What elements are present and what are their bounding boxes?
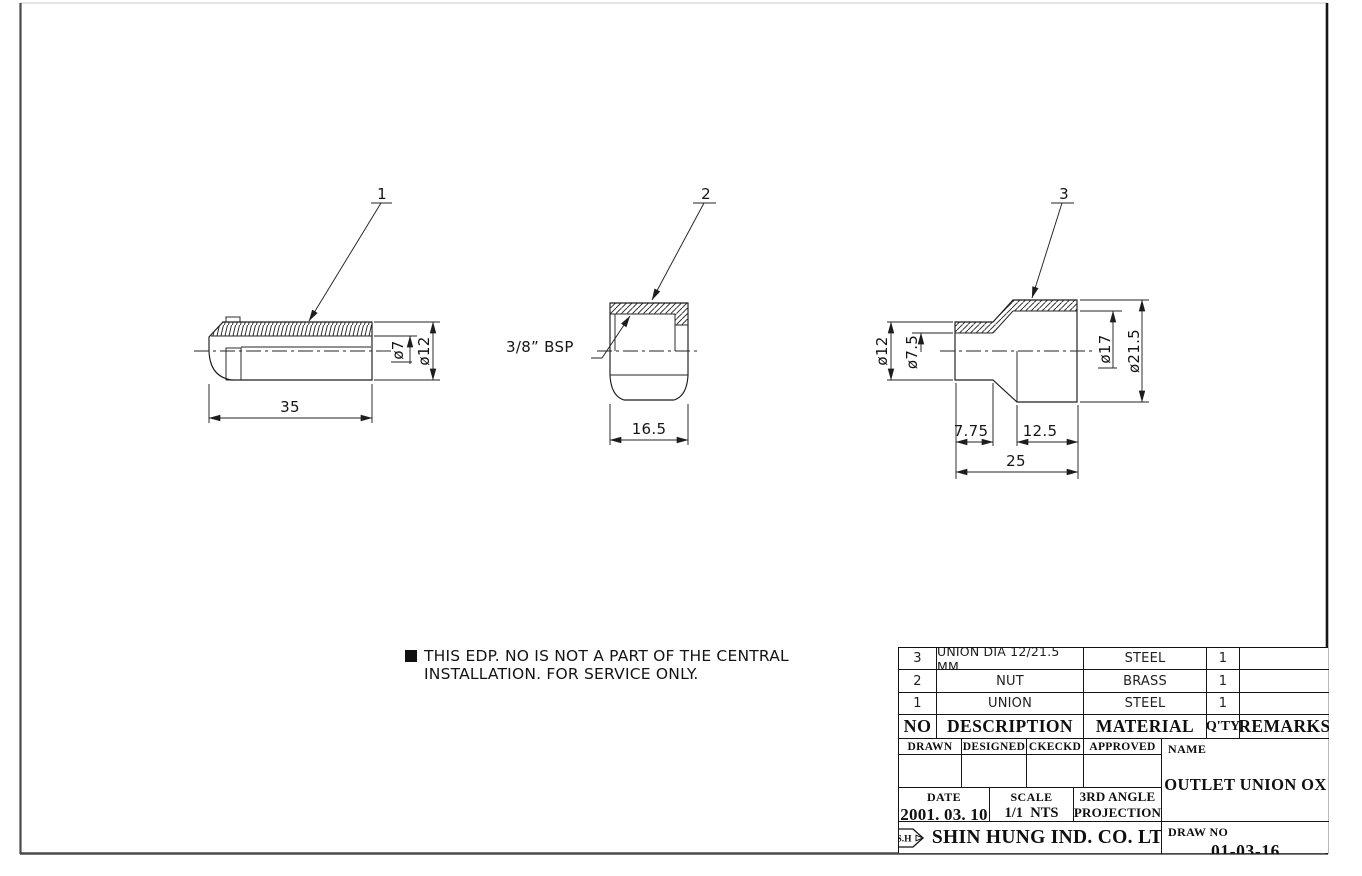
- dim-view3-bore-small: ø7.5: [903, 335, 921, 369]
- view-outlet-union: 3 ø12 ø7.5 ø17 ø21.5 7.75 12.5 25: [873, 185, 1149, 479]
- parts-row-qty: 1: [1206, 648, 1239, 669]
- balloon-3: 3: [1059, 185, 1069, 203]
- scale-cell: SCALE 1/1 NTS: [989, 787, 1073, 821]
- dim-view1-length: 35: [280, 398, 300, 416]
- dim-view3-len-small: 7.75: [954, 422, 989, 440]
- drawno-panel: DRAW NO 01-03-16: [1161, 821, 1329, 854]
- parts-row-qty: 1: [1206, 692, 1239, 714]
- parts-header-no: NO: [899, 714, 936, 738]
- dim-view2-width: 16.5: [632, 420, 667, 438]
- parts-row-remarks: [1239, 669, 1329, 692]
- parts-row-description: NUT: [936, 669, 1083, 692]
- balloon3-leader: [1032, 203, 1062, 298]
- balloon2-leader: [652, 203, 704, 300]
- view-nut: 2 3/8” BSP 16.5: [506, 185, 716, 445]
- balloon-1: 1: [377, 185, 387, 203]
- projection-line2: PROJECTION: [1074, 805, 1161, 821]
- note-line2: INSTALLATION. FOR SERVICE ONLY.: [424, 666, 789, 684]
- parts-row-material: STEEL: [1083, 692, 1206, 714]
- balloon-2: 2: [701, 185, 711, 203]
- service-note: THIS EDP. NO IS NOT A PART OF THE CENTRA…: [405, 648, 789, 683]
- parts-row-description: UNION: [936, 692, 1083, 714]
- parts-row-description: UNION DIA 12/21.5 MM: [936, 648, 1083, 669]
- sign-header-designed: DESIGNED: [961, 738, 1026, 754]
- parts-header-remarks: REMARKS: [1239, 714, 1329, 738]
- dim-view3-len-total: 25: [1006, 452, 1026, 470]
- projection-line1: 3RD ANGLE: [1074, 789, 1161, 805]
- drawing-name: OUTLET UNION OX: [1162, 775, 1329, 795]
- company-name: SHIN HUNG IND. CO. LTD: [932, 827, 1161, 849]
- sign-header-drawn: DRAWN: [899, 738, 961, 754]
- dim-view3-bore-large: ø17: [1096, 334, 1114, 363]
- date-label: DATE: [927, 790, 961, 805]
- sign-cell-approved: [1083, 754, 1161, 787]
- outlet-section-hatch: [955, 300, 1077, 333]
- parts-row-remarks: [1239, 648, 1329, 669]
- parts-header-qty: Q'TY: [1206, 714, 1239, 738]
- parts-row-no: 2: [899, 669, 936, 692]
- sign-header-checked: CKECKD: [1026, 738, 1083, 754]
- union-serration-hatch: [210, 322, 372, 337]
- union-first-barb: [226, 317, 240, 322]
- company-cell: S.H SHIN HUNG IND. CO. LTD: [899, 821, 1161, 854]
- thread-callout: 3/8” BSP: [506, 338, 574, 356]
- parts-row-material: STEEL: [1083, 648, 1206, 669]
- parts-row-material: BRASS: [1083, 669, 1206, 692]
- title-block: 3 UNION DIA 12/21.5 MM STEEL 1 2 NUT BRA…: [898, 647, 1328, 853]
- parts-header-description: DESCRIPTION: [936, 714, 1083, 738]
- parts-row-remarks: [1239, 692, 1329, 714]
- drawing-sheet: 1 35 ø7 ø12 2 3/8” BSP: [0, 0, 1362, 876]
- sign-cell-drawn: [899, 754, 961, 787]
- dim-view3-od-small: ø12: [873, 336, 891, 365]
- balloon1-leader: [309, 203, 381, 321]
- parts-row-no: 3: [899, 648, 936, 669]
- parts-header-material: MATERIAL: [1083, 714, 1206, 738]
- note-line1: THIS EDP. NO IS NOT A PART OF THE CENTRA…: [424, 648, 789, 666]
- drawno-label: DRAW NO: [1162, 822, 1329, 840]
- dim-view3-od-large: ø21.5: [1125, 329, 1143, 373]
- parts-row-no: 1: [899, 692, 936, 714]
- parts-row-qty: 1: [1206, 669, 1239, 692]
- scale-label: SCALE: [1010, 790, 1052, 805]
- projection-cell: 3RD ANGLE PROJECTION: [1073, 787, 1161, 821]
- sign-cell-checked: [1026, 754, 1083, 787]
- date-cell: DATE 2001. 03. 10: [899, 787, 989, 821]
- dim-view1-od: ø12: [415, 336, 433, 365]
- union-groove: [226, 348, 241, 380]
- dim-view3-len-large: 12.5: [1023, 422, 1058, 440]
- note-bullet-square: [405, 650, 417, 662]
- view-union: 1 35 ø7 ø12: [194, 185, 440, 423]
- company-logo-icon: S.H: [899, 826, 925, 850]
- sign-cell-designed: [961, 754, 1026, 787]
- logo-text: S.H: [899, 835, 912, 845]
- name-panel: NAME OUTLET UNION OX: [1161, 738, 1329, 821]
- scale-value: 1/1 NTS: [1005, 805, 1059, 821]
- name-label: NAME: [1162, 739, 1329, 757]
- sign-header-approved: APPROVED: [1083, 738, 1161, 754]
- drawno-value: 01-03-16: [1162, 841, 1329, 854]
- date-value: 2001. 03. 10: [900, 805, 987, 821]
- dim-view1-bore: ø7: [389, 340, 407, 359]
